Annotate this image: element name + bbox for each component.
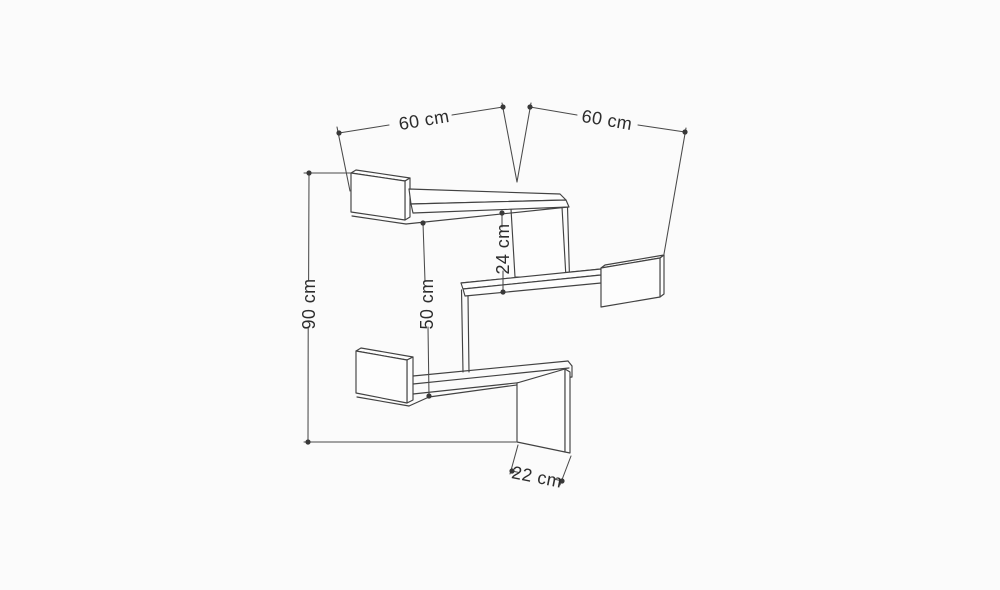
top-shelf-end-panel xyxy=(351,170,410,224)
dimension-label-shelf-depth: 22 cm xyxy=(510,462,564,491)
dimension-gap-top-to-bottom-shelf: 50 cm xyxy=(417,220,437,398)
dimension-shelf-depth: 22 cm xyxy=(509,445,571,492)
bottom-shelf xyxy=(356,290,572,453)
corner-divider-lower xyxy=(462,290,470,372)
bottom-shelf-hanging-panel xyxy=(517,369,570,453)
dimension-label-gap-top-to-bottom-shelf: 50 cm xyxy=(417,278,437,329)
middle-shelf-end-panel xyxy=(601,255,664,307)
dimension-label-overall-height: 90 cm xyxy=(299,278,319,329)
corner-shelf-technical-drawing: 60 cm 60 cm 24 cm 50 cm 90 cm xyxy=(0,0,1000,590)
dimension-label-gap-top-to-middle-shelf: 24 cm xyxy=(493,223,513,274)
corner-divider-upper xyxy=(511,207,570,279)
middle-shelf xyxy=(461,207,664,308)
bottom-shelf-end-panel xyxy=(356,348,413,406)
dimension-label-upper-right-shelf-length: 60 cm xyxy=(580,106,634,134)
dimension-label-upper-left-shelf-length: 60 cm xyxy=(397,106,451,134)
shelf-dimension-diagram-page: 60 cm 60 cm 24 cm 50 cm 90 cm xyxy=(0,0,1000,590)
